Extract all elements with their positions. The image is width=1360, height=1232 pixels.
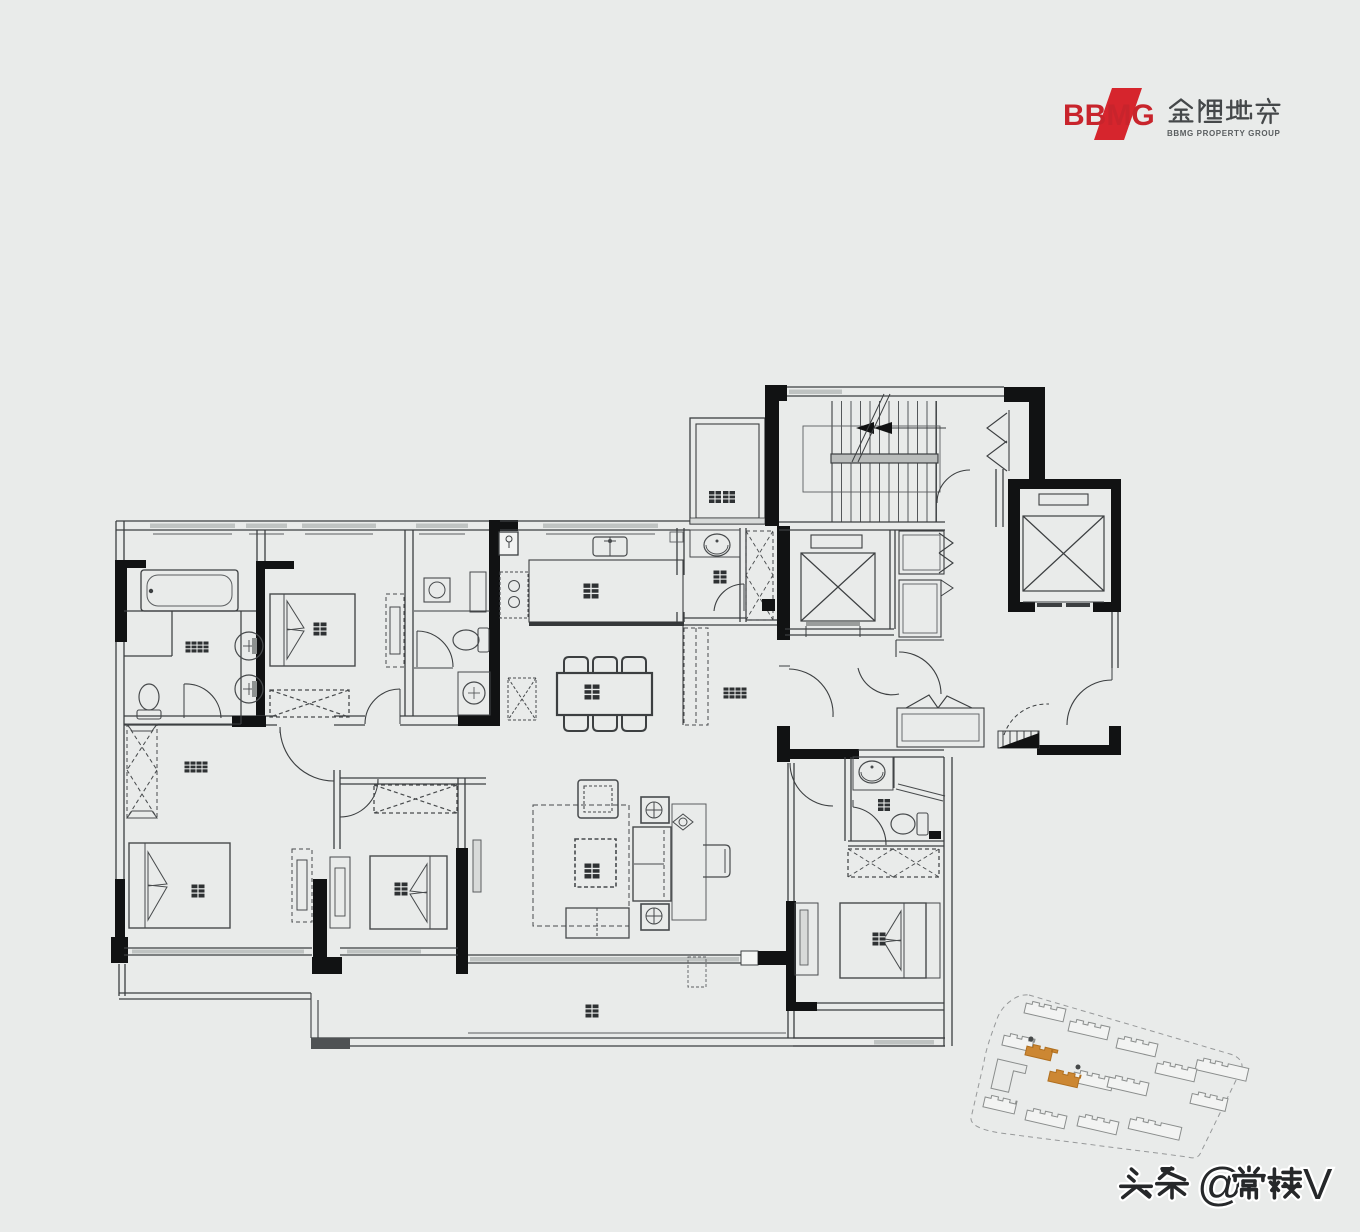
svg-text:BBMG PROPERTY GROUP: BBMG PROPERTY GROUP	[1167, 129, 1281, 138]
svg-text:V: V	[1303, 1160, 1333, 1209]
svg-text:BBMG: BBMG	[1063, 99, 1155, 132]
